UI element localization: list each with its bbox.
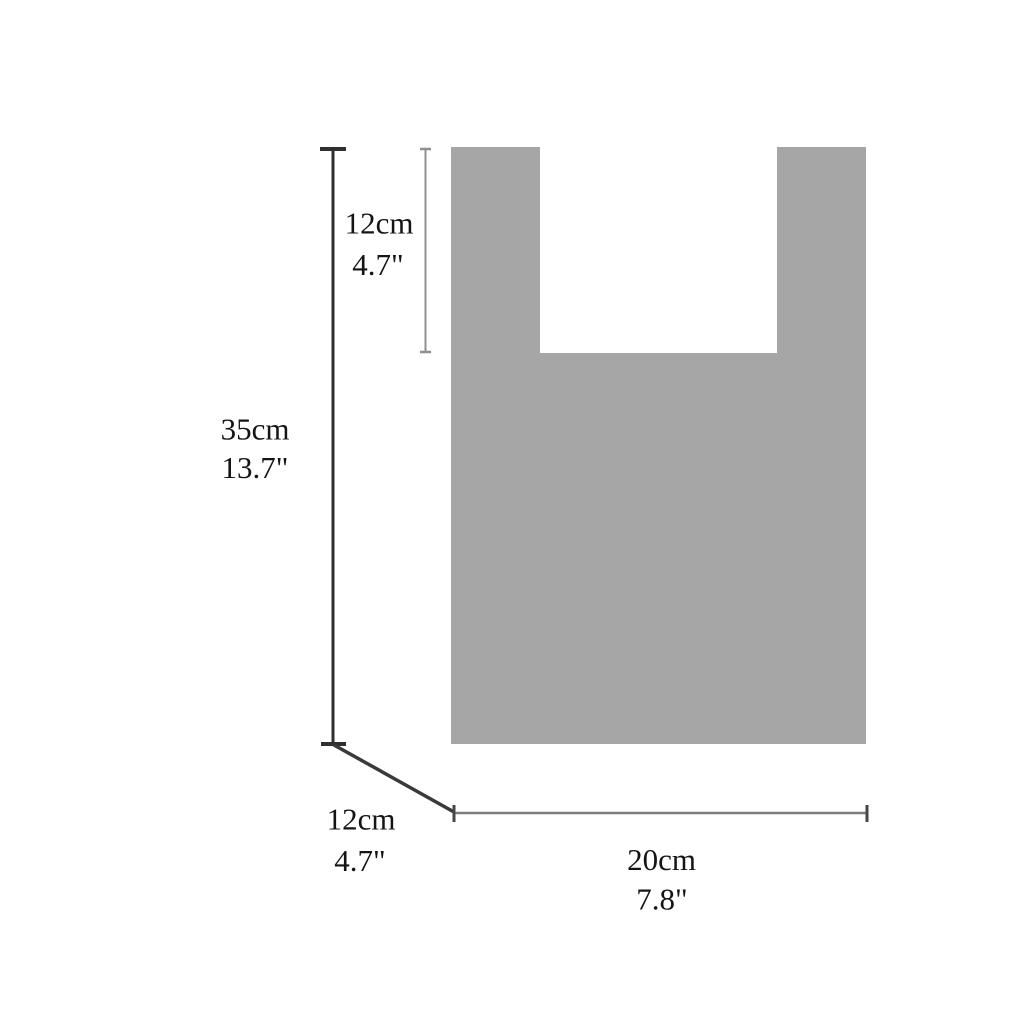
svg-text:13.7": 13.7" (222, 450, 289, 485)
svg-text:4.7": 4.7" (352, 247, 403, 282)
svg-text:4.7": 4.7" (334, 843, 385, 878)
svg-text:35cm: 35cm (221, 412, 290, 447)
svg-text:20cm: 20cm (627, 842, 696, 877)
svg-text:12cm: 12cm (345, 206, 414, 241)
svg-text:12cm: 12cm (327, 802, 396, 837)
svg-text:7.8": 7.8" (636, 882, 687, 917)
